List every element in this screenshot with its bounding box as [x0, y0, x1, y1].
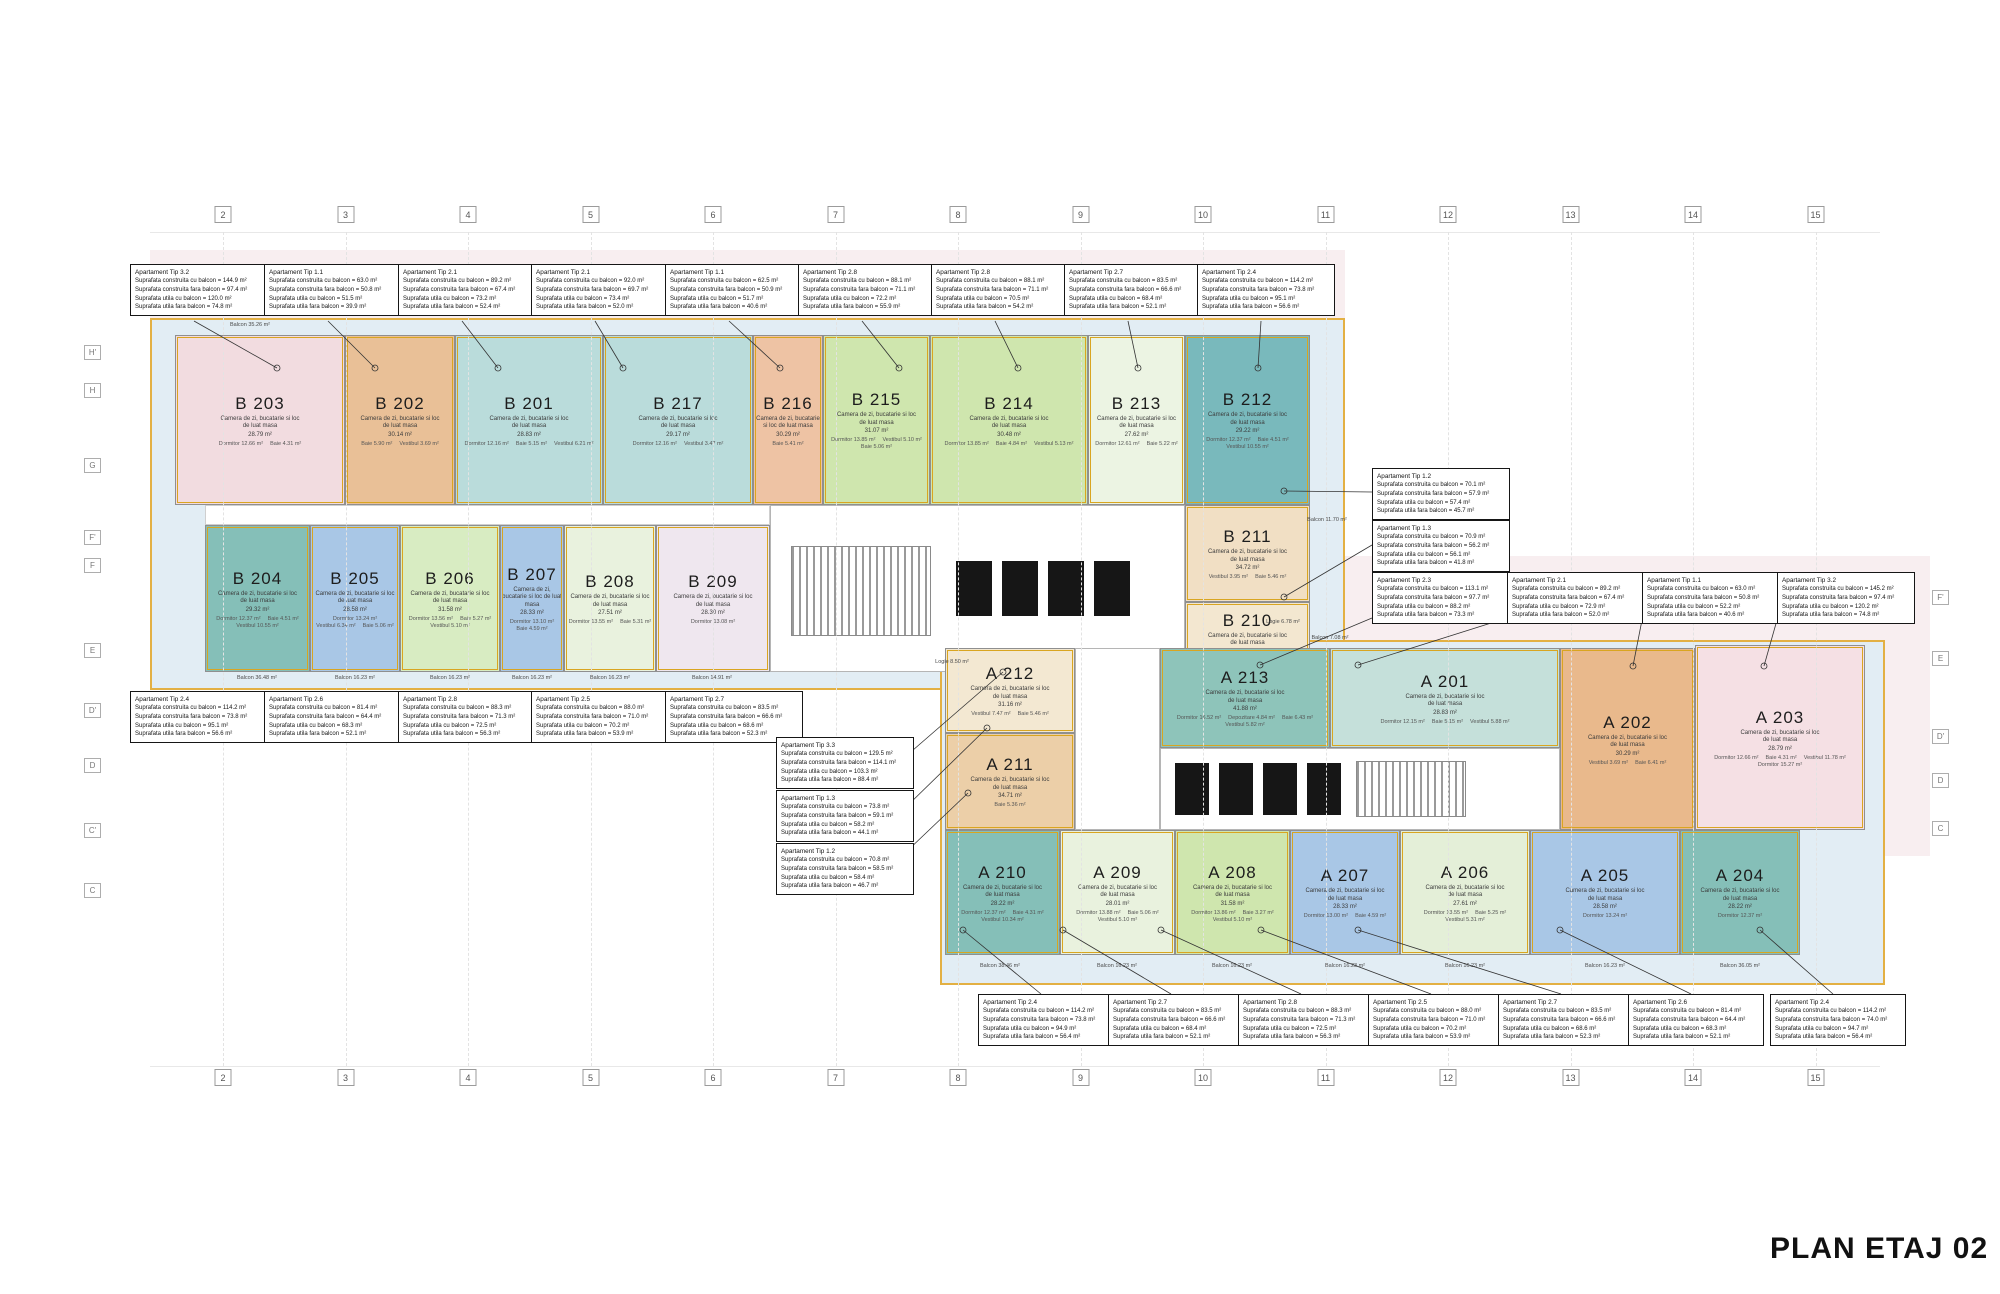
main-room-area: 27.51 m² — [598, 610, 622, 616]
room-label: Baie 4.59 m² — [516, 626, 547, 632]
floor-plan-canvas: 2233445566778899101011111212131314141515… — [0, 0, 2000, 1294]
room-label: Baie 5.31 m² — [620, 619, 651, 625]
annotation-line: Suprafata utila fara balcon = 73.3 m² — [1377, 611, 1505, 620]
annotation-line: Suprafata utila fara balcon = 56.6 m² — [1202, 303, 1330, 312]
grid-column-marker: 15 — [1807, 206, 1824, 223]
annotation-line: Suprafata construita cu balcon = 73.8 m² — [781, 803, 909, 812]
annotation-line: Suprafata utila fara balcon = 56.4 m² — [983, 1033, 1109, 1042]
grid-column-marker: 5 — [582, 1069, 599, 1086]
annotation-title: Apartament Tip 3.2 — [1782, 576, 1910, 585]
main-room-label: Camera de zi, bucatarie si loc de luat m… — [1402, 694, 1488, 709]
annotation-line: Suprafata utila cu balcon = 70.5 m² — [936, 295, 1064, 304]
unit-label: A 208 — [1208, 863, 1257, 883]
annotation-line: Suprafata utila fara balcon = 40.6 m² — [670, 303, 798, 312]
main-room-area: 27.61 m² — [1453, 901, 1477, 907]
annotation-title: Apartament Tip 2.4 — [983, 998, 1109, 1007]
annotation-line: Suprafata utila cu balcon = 95.1 m² — [135, 722, 263, 731]
apartment-type-annotation: Apartament Tip 1.3Suprafata construita c… — [776, 790, 914, 842]
annotation-line: Suprafata utila cu balcon = 68.3 m² — [1633, 1025, 1759, 1034]
annotation-line: Suprafata utila fara balcon = 46.7 m² — [781, 882, 909, 891]
main-room-label: Camera de zi, bucatarie si loc de luat m… — [357, 416, 443, 431]
grid-row-marker-left: E — [84, 643, 101, 658]
apartment-type-annotation: Apartament Tip 2.1Suprafata construita c… — [1507, 572, 1645, 624]
annotation-title: Apartament Tip 2.7 — [1503, 998, 1629, 1007]
room-label: Vestibul 5.31 m² — [1445, 917, 1484, 923]
main-room-label: Camera de zi, bucatarie si loc de luat m… — [967, 686, 1053, 701]
unit-a204: A 204Camera de zi, bucatarie si loc de l… — [1680, 830, 1800, 955]
plan-title: PLAN ETAJ 02 — [1770, 1232, 1988, 1266]
unit-a208: A 208Camera de zi, bucatarie si loc de l… — [1175, 830, 1290, 955]
annotation-line: Suprafata construita fara balcon = 73.8 … — [135, 713, 263, 722]
grid-column-marker: 6 — [705, 206, 722, 223]
grid-column-line — [836, 232, 837, 1066]
room-label: Vestibul 5.10 m² — [882, 437, 921, 443]
grid-column-marker: 3 — [337, 1069, 354, 1086]
apartment-type-annotation: Apartament Tip 2.7Suprafata construita c… — [1064, 264, 1202, 316]
unit-label: B 216 — [763, 394, 812, 414]
annotation-title: Apartament Tip 2.1 — [536, 268, 664, 277]
main-room-label: Camera de zi, bucatarie si loc de luat m… — [1422, 885, 1508, 900]
annotation-line: Suprafata construita fara balcon = 59.1 … — [781, 812, 909, 821]
unit-label: A 209 — [1093, 863, 1142, 883]
annotation-title: Apartament Tip 2.8 — [403, 695, 531, 704]
grid-column-marker: 13 — [1562, 1069, 1579, 1086]
room-label: Dormitor 16.52 m² — [1177, 715, 1221, 721]
apartment-type-annotation: Apartament Tip 1.1Suprafata construita c… — [665, 264, 803, 316]
a-elevator-core — [1160, 748, 1560, 830]
grid-column-line — [346, 232, 347, 1066]
unit-b206: B 206Camera de zi, bucatarie si loc de l… — [400, 525, 500, 672]
main-room-area: 28.33 m² — [520, 610, 544, 616]
apartment-type-annotation: Apartament Tip 1.1Suprafata construita c… — [264, 264, 402, 316]
room-label: Baie 6.41 m² — [1635, 760, 1666, 766]
main-room-label: Camera de zi, bucatarie si loc de luat m… — [635, 416, 721, 431]
room-label: Dormitor 13.24 m² — [1583, 913, 1627, 919]
unit-a206: A 206Camera de zi, bucatarie si loc de l… — [1400, 830, 1530, 955]
unit-a213: A 213Camera de zi, bucatarie si loc de l… — [1160, 648, 1330, 748]
annotation-title: Apartament Tip 1.2 — [781, 847, 909, 856]
room-labels: Dormitor 13.86 m²Baie 3.27 m²Vestibul 5.… — [1181, 910, 1285, 923]
grid-column-marker: 12 — [1440, 1069, 1457, 1086]
room-labels: Dormitor 12.66 m²Baie 4.31 m² — [219, 441, 302, 447]
balcony-label: Balcon 36.05 m² — [1720, 963, 1760, 969]
unit-label: A 207 — [1321, 866, 1370, 886]
annotation-line: Suprafata utila cu balcon = 58.2 m² — [781, 821, 909, 830]
grid-row-marker-left: D' — [84, 703, 101, 718]
room-label: Dormitor 13.85 m² — [945, 441, 989, 447]
annotation-line: Suprafata construita fara balcon = 71.3 … — [1243, 1016, 1369, 1025]
annotation-line: Suprafata utila fara balcon = 74.8 m² — [1782, 611, 1910, 620]
room-label: Dormitor 13.86 m² — [1191, 910, 1235, 916]
room-label: Baie 5.25 m² — [1475, 910, 1506, 916]
grid-column-marker: 14 — [1685, 206, 1702, 223]
unit-b207: B 207Camera de zi, bucatarie si loc de l… — [500, 525, 564, 672]
room-label: Baie 5.06 m² — [861, 444, 892, 450]
room-label: Vestibul 6.34 m² — [316, 623, 355, 629]
unit-label: A 211 — [986, 755, 1033, 775]
annotation-line: Suprafata construita fara balcon = 66.6 … — [1503, 1016, 1629, 1025]
main-room-area: 31.58 m² — [438, 607, 462, 613]
room-label: Baie 5.27 m² — [460, 616, 491, 622]
main-room-label: Camera de zi, bucatarie si loc de luat m… — [312, 591, 398, 606]
grid-row-marker-left: D — [84, 758, 101, 773]
main-room-label: Camera de zi, bucatarie si loc de luat m… — [754, 416, 822, 431]
grid-column-marker: 10 — [1195, 206, 1212, 223]
apartment-type-annotation: Apartament Tip 2.4Suprafata construita c… — [1770, 994, 1906, 1046]
unit-label: B 208 — [585, 572, 634, 592]
room-label: Dormitor 12.16 m² — [465, 441, 509, 447]
room-label: Baie 4.84 m² — [996, 441, 1027, 447]
annotation-line: Suprafata construita fara balcon = 66.6 … — [1113, 1016, 1239, 1025]
annotation-line: Suprafata utila fara balcon = 53.9 m² — [536, 730, 664, 739]
apartment-type-annotation: Apartament Tip 2.1Suprafata construita c… — [398, 264, 536, 316]
balcony-label: Balcon 16.23 m² — [1585, 963, 1625, 969]
annotation-line: Suprafata utila cu balcon = 68.3 m² — [269, 722, 397, 731]
room-labels: Dormitor 16.52 m²Depozitare 4.84 m²Baie … — [1168, 715, 1323, 728]
main-room-label: Camera de zi, bucatarie si loc de luat m… — [1202, 690, 1288, 705]
annotation-line: Suprafata utila cu balcon = 73.2 m² — [403, 295, 531, 304]
annotation-line: Suprafata construita fara balcon = 71.1 … — [936, 286, 1064, 295]
annotation-line: Suprafata construita cu balcon = 70.8 m² — [781, 856, 909, 865]
annotation-line: Suprafata utila cu balcon = 68.6 m² — [1503, 1025, 1629, 1034]
main-room-area: 41.88 m² — [1233, 706, 1257, 712]
room-label: Vestibul 6.21 m² — [554, 441, 593, 447]
unit-b201: B 201Camera de zi, bucatarie si loc de l… — [455, 335, 603, 505]
apartment-type-annotation: Apartament Tip 3.2Suprafata construita c… — [1777, 572, 1915, 624]
room-labels: Baie 5.90 m²Vestibul 3.69 m² — [361, 441, 439, 447]
annotation-line: Suprafata construita cu balcon = 88.0 m² — [1373, 1007, 1499, 1016]
grid-column-line — [1448, 232, 1449, 1066]
room-label: Dormitor 12.37 m² — [1718, 913, 1762, 919]
main-room-label: Camera de zi, bucatarie si loc de luat m… — [1205, 633, 1291, 648]
annotation-line: Suprafata construita cu balcon = 62.5 m² — [670, 277, 798, 286]
annotation-line: Suprafata utila cu balcon = 68.4 m² — [1113, 1025, 1239, 1034]
balcony-label: Balcon 14.91 m² — [692, 675, 732, 681]
unit-label: A 213 — [1221, 668, 1270, 688]
annotation-line: Suprafata construita cu balcon = 88.1 m² — [803, 277, 931, 286]
grid-column-marker: 12 — [1440, 206, 1457, 223]
unit-b214: B 214Camera de zi, bucatarie si loc de l… — [930, 335, 1088, 505]
grid-row-marker-right: D — [1932, 773, 1949, 788]
room-labels: Dormitor 13.56 m²Baie 5.27 m²Vestibul 5.… — [405, 616, 495, 629]
grid-column-marker: 4 — [460, 206, 477, 223]
annotation-line: Suprafata utila cu balcon = 95.1 m² — [1202, 295, 1330, 304]
room-label: Vestibul 10.55 m² — [236, 623, 279, 629]
annotation-line: Suprafata construita fara balcon = 69.7 … — [536, 286, 664, 295]
room-label: Baie 3.27 m² — [1243, 910, 1274, 916]
main-room-label: Camera de zi, bucatarie si loc de luat m… — [834, 412, 920, 427]
room-labels: Dormitor 12.37 m²Baie 4.31 m²Vestibul 10… — [951, 910, 1055, 923]
apartment-type-annotation: Apartament Tip 2.4Suprafata construita c… — [1197, 264, 1335, 316]
annotation-line: Suprafata construita fara balcon = 50.9 … — [670, 286, 798, 295]
bottom-dimension-line — [150, 1066, 1880, 1067]
annotation-title: Apartament Tip 2.7 — [670, 695, 798, 704]
unit-a210: A 210Camera de zi, bucatarie si loc de l… — [945, 830, 1060, 955]
grid-column-marker: 9 — [1072, 206, 1089, 223]
main-room-label: Camera de zi, bucatarie si loc de luat m… — [1585, 735, 1671, 750]
room-label: Vestibul 3.69 m² — [1589, 760, 1628, 766]
main-room-area: 28.22 m² — [991, 901, 1015, 907]
room-label: Vestibul 7.47 m² — [971, 711, 1010, 717]
annotation-line: Suprafata construita cu balcon = 113.1 m… — [1377, 585, 1505, 594]
annotation-line: Suprafata utila cu balcon = 57.4 m² — [1377, 499, 1505, 508]
annotation-line: Suprafata construita cu balcon = 83.5 m² — [1113, 1007, 1239, 1016]
annotation-line: Suprafata utila cu balcon = 72.5 m² — [1243, 1025, 1369, 1034]
grid-row-marker-left: G — [84, 458, 101, 473]
annotation-line: Suprafata utila cu balcon = 68.6 m² — [670, 722, 798, 731]
annotation-line: Suprafata construita fara balcon = 64.4 … — [269, 713, 397, 722]
unit-label: B 214 — [984, 394, 1033, 414]
room-label: Baie 4.31 m² — [1766, 755, 1797, 761]
apartment-type-annotation: Apartament Tip 2.5Suprafata construita c… — [531, 691, 669, 743]
annotation-title: Apartament Tip 2.3 — [1377, 576, 1505, 585]
unit-label: B 203 — [235, 394, 284, 414]
balcony-label: Balcon 36.48 m² — [237, 675, 277, 681]
grid-column-marker: 8 — [950, 206, 967, 223]
annotation-line: Suprafata utila cu balcon = 51.5 m² — [269, 295, 397, 304]
a-lobby-core — [1075, 648, 1160, 830]
annotation-line: Suprafata construita fara balcon = 97.4 … — [135, 286, 263, 295]
grid-column-line — [591, 232, 592, 1066]
annotation-line: Suprafata utila fara balcon = 52.4 m² — [403, 303, 531, 312]
annotation-line: Suprafata construita cu balcon = 70.9 m² — [1377, 533, 1505, 542]
room-labels: Dormitor 13.24 m² — [1583, 913, 1627, 919]
annotation-line: Suprafata utila fara balcon = 55.9 m² — [803, 303, 931, 312]
unit-b203: B 203Camera de zi, bucatarie si loc de l… — [175, 335, 345, 505]
grid-column-marker: 7 — [827, 206, 844, 223]
annotation-line: Suprafata utila cu balcon = 70.2 m² — [1373, 1025, 1499, 1034]
main-room-area: 28.22 m² — [1728, 904, 1752, 910]
annotation-line: Suprafata construita fara balcon = 67.4 … — [1512, 594, 1640, 603]
apartment-type-annotation: Apartament Tip 2.3Suprafata construita c… — [1372, 572, 1510, 624]
room-label: Vestibul 5.82 m² — [1225, 722, 1264, 728]
grid-column-marker: 14 — [1685, 1069, 1702, 1086]
balcony-label: Balcon 7.08 m² — [1312, 635, 1349, 641]
apartment-type-annotation: Apartament Tip 2.1Suprafata construita c… — [531, 264, 669, 316]
annotation-line: Suprafata construita cu balcon = 88.0 m² — [536, 704, 664, 713]
annotation-line: Suprafata utila cu balcon = 70.2 m² — [536, 722, 664, 731]
unit-label: A 212 — [986, 664, 1035, 684]
balcony-label: Balcon 16.23 m² — [430, 675, 470, 681]
room-label: Vestibul 10.55 m² — [1226, 444, 1269, 450]
annotation-line: Suprafata construita cu balcon = 92.0 m² — [536, 277, 664, 286]
room-label: Vestibul 3.69 m² — [399, 441, 438, 447]
annotation-line: Suprafata construita fara balcon = 74.0 … — [1775, 1016, 1901, 1025]
room-label: Dormitor 13.24 m² — [333, 616, 377, 622]
balcony-label: Logie 8.50 m² — [935, 659, 969, 665]
room-labels: Dormitor 13.24 m²Vestibul 6.34 m²Baie 5.… — [315, 616, 396, 629]
grid-column-marker: 15 — [1807, 1069, 1824, 1086]
annotation-line: Suprafata construita fara balcon = 71.0 … — [536, 713, 664, 722]
grid-row-marker-right: F' — [1932, 590, 1949, 605]
balcony-label: Balcon 16.23 m² — [512, 675, 552, 681]
room-labels: Dormitor 12.61 m²Baie 5.22 m² — [1095, 441, 1178, 447]
main-room-label: Camera de zi, bucatarie si loc de luat m… — [217, 416, 303, 431]
grid-column-marker: 3 — [337, 206, 354, 223]
annotation-line: Suprafata construita cu balcon = 89.2 m² — [403, 277, 531, 286]
room-label: Vestibul 3.47 m² — [684, 441, 723, 447]
annotation-title: Apartament Tip 1.1 — [670, 268, 798, 277]
annotation-line: Suprafata construita fara balcon = 58.5 … — [781, 865, 909, 874]
room-label: Dormitor 13.88 m² — [1076, 910, 1120, 916]
grid-column-line — [223, 232, 224, 1066]
main-room-label: Camera de zi, bucatarie si loc de luat m… — [567, 594, 653, 609]
grid-row-marker-right: E — [1932, 651, 1949, 666]
grid-column-marker: 9 — [1072, 1069, 1089, 1086]
room-label: Baie 6.43 m² — [1282, 715, 1313, 721]
annotation-line: Suprafata construita cu balcon = 63.0 m² — [269, 277, 397, 286]
room-label: Baie 5.22 m² — [1147, 441, 1178, 447]
b-corridor — [205, 505, 770, 525]
main-room-area: 28.58 m² — [1593, 904, 1617, 910]
annotation-title: Apartament Tip 2.5 — [1373, 998, 1499, 1007]
annotation-line: Suprafata construita cu balcon = 88.3 m² — [1243, 1007, 1369, 1016]
unit-a202: A 202Camera de zi, bucatarie si loc de l… — [1560, 648, 1695, 830]
unit-label: B 204 — [233, 569, 282, 589]
grid-column-line — [1081, 232, 1082, 1066]
annotation-line: Suprafata utila fara balcon = 44.1 m² — [781, 829, 909, 838]
room-label: Dormitor 15.27 m² — [1758, 762, 1802, 768]
annotation-title: Apartament Tip 2.4 — [135, 695, 263, 704]
room-labels: Dormitor 13.85 m²Baie 4.84 m²Vestibul 5.… — [945, 441, 1074, 447]
annotation-line: Suprafata utila fara balcon = 88.4 m² — [781, 776, 909, 785]
room-label: Vestibul 10.34 m² — [981, 917, 1024, 923]
main-room-label: Camera de zi, bucatarie si loc de luat m… — [1697, 888, 1783, 903]
annotation-title: Apartament Tip 2.8 — [936, 268, 1064, 277]
main-room-area: 31.58 m² — [1221, 901, 1245, 907]
annotation-line: Suprafata utila cu balcon = 103.3 m² — [781, 768, 909, 777]
unit-b204: B 204Camera de zi, bucatarie si loc de l… — [205, 525, 310, 672]
room-label: Dormitor 13.85 m² — [831, 437, 875, 443]
apartment-type-annotation: Apartament Tip 1.2Suprafata construita c… — [1372, 468, 1510, 520]
annotation-line: Suprafata utila fara balcon = 52.1 m² — [269, 730, 397, 739]
annotation-line: Suprafata utila cu balcon = 68.4 m² — [1069, 295, 1197, 304]
annotation-line: Suprafata construita cu balcon = 144.9 m… — [135, 277, 263, 286]
room-labels: Vestibul 7.47 m²Baie 5.46 m² — [971, 711, 1049, 717]
unit-a211: A 211Camera de zi, bucatarie si loc de l… — [945, 733, 1075, 830]
grid-column-line — [958, 232, 959, 1066]
main-room-area: 28.01 m² — [1106, 901, 1130, 907]
room-label: Baie 4.59 m² — [1355, 913, 1386, 919]
annotation-line: Suprafata utila fara balcon = 52.1 m² — [1633, 1033, 1759, 1042]
room-labels: Dormitor 12.37 m²Baie 4.51 m²Vestibul 10… — [1191, 437, 1304, 450]
annotation-line: Suprafata utila cu balcon = 73.4 m² — [536, 295, 664, 304]
main-room-label: Camera de zi, bucatarie si loc de luat m… — [501, 587, 563, 610]
grid-row-marker-left: C' — [84, 823, 101, 838]
main-room-area: 28.79 m² — [1768, 746, 1792, 752]
unit-label: B 202 — [375, 394, 424, 414]
main-room-label: Camera de zi, bucatarie si loc de luat m… — [1075, 885, 1161, 900]
unit-a207: A 207Camera de zi, bucatarie si loc de l… — [1290, 830, 1400, 955]
unit-label: B 213 — [1112, 394, 1161, 414]
annotation-line: Suprafata utila cu balcon = 88.2 m² — [1377, 603, 1505, 612]
room-label: Baie 4.31 m² — [1013, 910, 1044, 916]
grid-column-marker: 13 — [1562, 206, 1579, 223]
apartment-type-annotation: Apartament Tip 1.1Suprafata construita c… — [1642, 572, 1780, 624]
main-room-area: 31.07 m² — [865, 428, 889, 434]
annotation-title: Apartament Tip 2.8 — [1243, 998, 1369, 1007]
annotation-line: Suprafata construita cu balcon = 88.1 m² — [936, 277, 1064, 286]
unit-label: B 215 — [852, 390, 901, 410]
unit-b213: B 213Camera de zi, bucatarie si loc de l… — [1088, 335, 1185, 505]
grid-column-line — [1326, 232, 1327, 1066]
annotation-line: Suprafata construita fara balcon = 73.8 … — [1202, 286, 1330, 295]
grid-row-marker-left: H — [84, 383, 101, 398]
annotation-line: Suprafata utila cu balcon = 94.7 m² — [1775, 1025, 1901, 1034]
apartment-type-annotation: Apartament Tip 2.4Suprafata construita c… — [130, 691, 268, 743]
annotation-title: Apartament Tip 1.1 — [269, 268, 397, 277]
room-labels: Dormitor 12.37 m² — [1718, 913, 1762, 919]
annotation-line: Suprafata construita cu balcon = 83.5 m² — [1503, 1007, 1629, 1016]
annotation-title: Apartament Tip 3.2 — [135, 268, 263, 277]
main-room-label: Camera de zi, bucatarie si loc de luat m… — [407, 591, 493, 606]
annotation-line: Suprafata utila fara balcon = 45.7 m² — [1377, 507, 1505, 516]
grid-column-line — [1816, 232, 1817, 1066]
main-room-area: 34.72 m² — [1236, 565, 1260, 571]
unit-label: A 203 — [1756, 708, 1805, 728]
main-room-area: 28.33 m² — [1333, 904, 1357, 910]
annotation-line: Suprafata utila fara balcon = 41.8 m² — [1377, 559, 1505, 568]
apartment-type-annotation: Apartament Tip 2.8Suprafata construita c… — [1238, 994, 1374, 1046]
annotation-line: Suprafata construita fara balcon = 66.6 … — [1069, 286, 1197, 295]
annotation-line: Suprafata construita fara balcon = 71.1 … — [803, 286, 931, 295]
annotation-title: Apartament Tip 2.4 — [1202, 268, 1330, 277]
annotation-title: Apartament Tip 1.1 — [1647, 576, 1775, 585]
annotation-line: Suprafata utila cu balcon = 72.5 m² — [403, 722, 531, 731]
main-room-area: 30.29 m² — [776, 432, 800, 438]
room-label: Baie 5.46 m² — [1018, 711, 1049, 717]
annotation-line: Suprafata utila fara balcon = 40.6 m² — [1647, 611, 1775, 620]
room-label: Baie 5.46 m² — [1255, 574, 1286, 580]
grid-column-line — [713, 232, 714, 1066]
annotation-line: Suprafata utila fara balcon = 53.9 m² — [1373, 1033, 1499, 1042]
unit-label: A 202 — [1603, 713, 1652, 733]
room-labels: Dormitor 13.00 m²Baie 4.59 m² — [1304, 913, 1387, 919]
apartment-type-annotation: Apartament Tip 2.5Suprafata construita c… — [1368, 994, 1504, 1046]
main-room-label: Camera de zi, bucatarie si loc de luat m… — [1562, 888, 1648, 903]
main-room-label: Camera de zi, bucatarie si loc de luat m… — [966, 416, 1052, 431]
annotation-line: Suprafata utila cu balcon = 58.4 m² — [781, 874, 909, 883]
main-room-label: Camera de zi, bucatarie si loc de luat m… — [967, 777, 1053, 792]
balcony-label: Balcon 16.23 m² — [1445, 963, 1485, 969]
apartment-type-annotation: Apartament Tip 2.8Suprafata construita c… — [398, 691, 536, 743]
room-label: Baie 4.51 m² — [1258, 437, 1289, 443]
annotation-line: Suprafata construita fara balcon = 50.8 … — [269, 286, 397, 295]
annotation-line: Suprafata construita cu balcon = 114.2 m… — [1775, 1007, 1901, 1016]
unit-label: A 204 — [1716, 866, 1765, 886]
balcony-label: Balcon 16.23 m² — [1212, 963, 1252, 969]
annotation-line: Suprafata utila cu balcon = 72.9 m² — [1512, 603, 1640, 612]
grid-column-marker: 6 — [705, 1069, 722, 1086]
grid-row-marker-left: F' — [84, 530, 101, 545]
grid-column-line — [1571, 232, 1572, 1066]
main-room-area: 28.83 m² — [517, 432, 541, 438]
room-label: Vestibul 5.10 m² — [430, 623, 469, 629]
annotation-title: Apartament Tip 1.2 — [1377, 472, 1505, 481]
unit-b208: B 208Camera de zi, bucatarie si loc de l… — [564, 525, 656, 672]
room-label: Vestibul 3.95 m² — [1209, 574, 1248, 580]
main-room-area: 30.29 m² — [1616, 751, 1640, 757]
main-room-label: Camera de zi, bucatarie si loc de luat m… — [486, 416, 572, 431]
apartment-type-annotation: Apartament Tip 2.8Suprafata construita c… — [931, 264, 1069, 316]
unit-a209: A 209Camera de zi, bucatarie si loc de l… — [1060, 830, 1175, 955]
grid-row-marker-left: C — [84, 883, 101, 898]
apartment-type-annotation: Apartament Tip 3.3Suprafata construita c… — [776, 737, 914, 789]
grid-row-marker-left: H' — [84, 345, 101, 360]
room-label: Vestibul 5.10 m² — [1098, 917, 1137, 923]
main-room-area: 28.58 m² — [343, 607, 367, 613]
unit-b215: B 215Camera de zi, bucatarie si loc de l… — [823, 335, 930, 505]
